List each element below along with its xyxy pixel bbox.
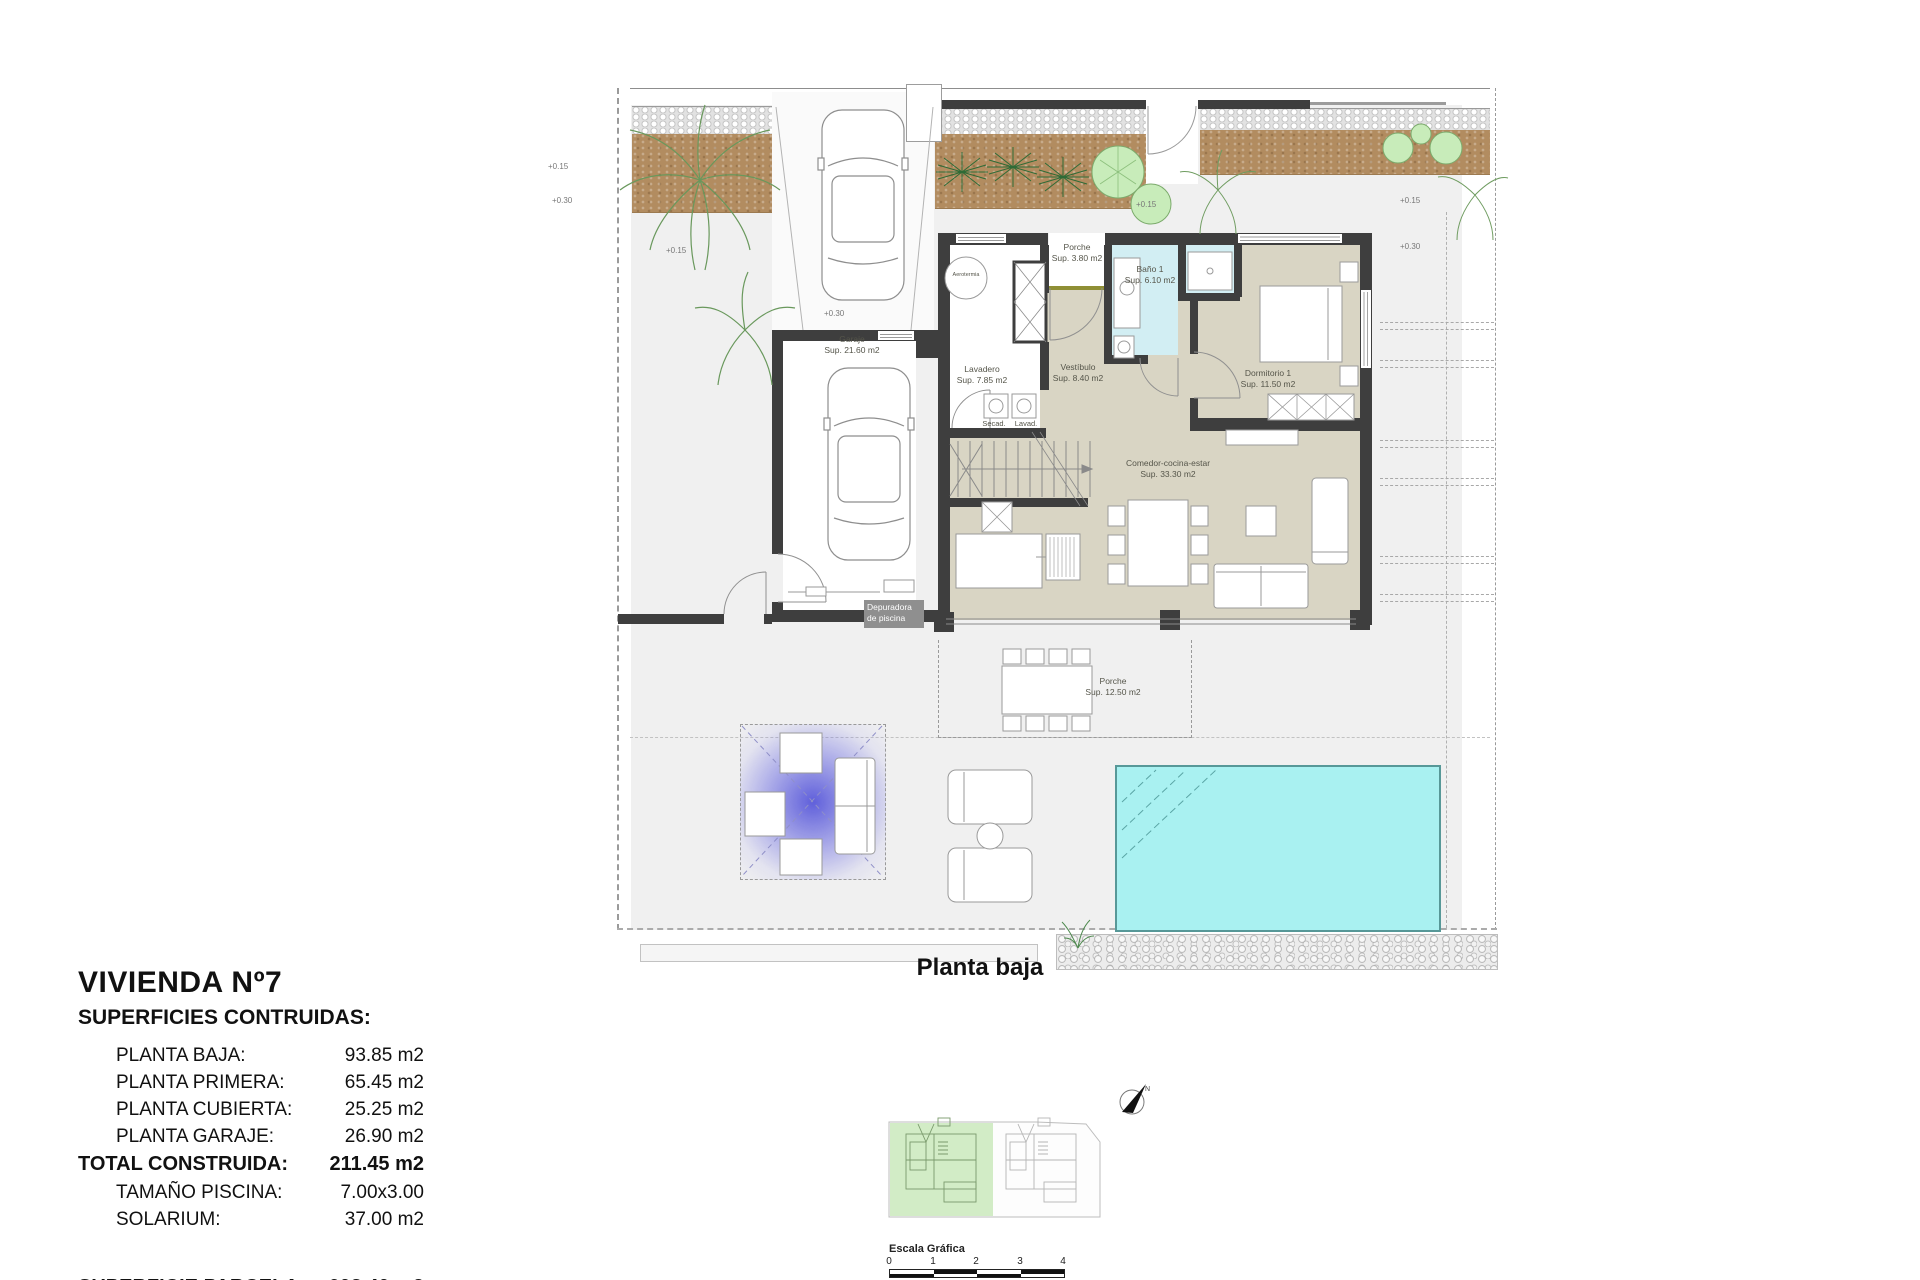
room-label-porche-sur: Porche Sup. 12.50 m2: [1085, 676, 1140, 698]
summary-total-row: TOTAL CONSTRUIDA: 211.45 m2: [78, 1150, 424, 1179]
fern-plant: [1180, 150, 1508, 240]
stairs: [950, 432, 1092, 506]
sun-loungers: [948, 770, 1032, 902]
small-plant: [1062, 920, 1094, 948]
room-label-dormitorio1: Dormitorio 1 Sup. 11.50 m2: [1241, 368, 1296, 390]
elevation-mark: +0.15: [666, 246, 686, 255]
scale-bar: [889, 1269, 1065, 1278]
summary-parcel-row: SUPERFICIE PARCELA: 608.40 m2: [78, 1273, 424, 1280]
scale-tick: 2: [973, 1256, 979, 1267]
elevation-mark: +0.15: [1136, 200, 1156, 209]
kitchen: [956, 502, 1080, 588]
elevator-shaft: [1014, 262, 1046, 342]
scale-bar-segment: [934, 1270, 978, 1274]
summary-row: PLANTA GARAJE: 26.90 m2: [78, 1123, 424, 1150]
room-label-porche-norte: Porche Sup. 3.80 m2: [1052, 242, 1103, 264]
summary-row: PLANTA CUBIERTA: 25.25 m2: [78, 1096, 424, 1123]
scale-tick: 3: [1017, 1256, 1023, 1267]
bedroom-furniture: [1260, 262, 1358, 420]
scale-tick: 1: [930, 1256, 936, 1267]
elevation-mark: +0.15: [1400, 196, 1420, 205]
label-lavadora: Lavad.: [1015, 419, 1038, 429]
elevation-mark: +0.15: [548, 162, 568, 171]
living-furniture: [1214, 430, 1348, 608]
summary-row: PLANTA PRIMERA: 65.45 m2: [78, 1069, 424, 1096]
summary-row: SOLARIUM: 37.00 m2: [78, 1206, 424, 1233]
pergola-detail: [742, 726, 882, 876]
scale-bar-segment: [890, 1274, 934, 1278]
summary-subtitle: SUPERFICIES CONTRUIDAS:: [78, 1006, 424, 1030]
room-label-vestibulo: Vestíbulo Sup. 8.40 m2: [1053, 362, 1104, 384]
porch-dining-set: [1002, 649, 1092, 731]
scale-title: Escala Gráfica: [889, 1243, 965, 1255]
plan-caption: Planta baja: [830, 954, 1130, 982]
gate-swing: [1148, 106, 1196, 154]
car-icon: [818, 110, 908, 300]
scale-tick: 4: [1060, 1256, 1066, 1267]
scale-bar-segment: [1021, 1270, 1065, 1274]
room-label-comedor: Comedor-cocina-estar Sup. 33.30 m2: [1126, 458, 1210, 480]
dwelling-title: VIVIENDA Nº7: [78, 966, 424, 1000]
label-depuradora: Depuradora de piscina: [864, 600, 924, 628]
svg-text:N: N: [1145, 1086, 1150, 1093]
dining-set: [1108, 500, 1208, 586]
shrub-starburst: [936, 147, 1089, 197]
car-icon: [824, 368, 914, 560]
pool-equipment: [788, 580, 914, 596]
glass-wall: [946, 619, 1356, 624]
elevation-mark: +0.30: [824, 309, 844, 318]
key-plan-highlight: [890, 1123, 993, 1216]
room-label-lavadero: Lavadero Sup. 7.85 m2: [957, 364, 1008, 386]
pool-steps: [1122, 770, 1216, 858]
north-arrow-icon: N: [1114, 1080, 1154, 1122]
plan-sheet: Garaje Sup. 21.60 m2 Lavadero Sup. 7.85 …: [0, 0, 1920, 1280]
summary-row: TAMAÑO PISCINA: 7.00x3.00: [78, 1179, 424, 1206]
label-secadora: Secad.: [982, 419, 1005, 429]
summary-row: PLANTA BAJA: 93.85 m2: [78, 1042, 424, 1069]
surface-summary: VIVIENDA Nº7 SUPERFICIES CONTRUIDAS: PLA…: [78, 966, 424, 1280]
palm-plant: [620, 105, 795, 385]
label-aerotermia: Aerotermia: [948, 272, 984, 279]
room-label-bano1: Baño 1 Sup. 6.10 m2: [1125, 264, 1176, 286]
laundry-appliances: [984, 394, 1036, 418]
elevation-mark: +0.30: [1400, 242, 1420, 251]
scale-tick: 0: [886, 1256, 892, 1267]
elevation-mark: +0.30: [552, 196, 572, 205]
scale-bar-segment: [977, 1274, 1021, 1278]
room-label-garaje: Garaje Sup. 21.60 m2: [824, 334, 879, 356]
key-plan: [886, 1112, 1106, 1224]
